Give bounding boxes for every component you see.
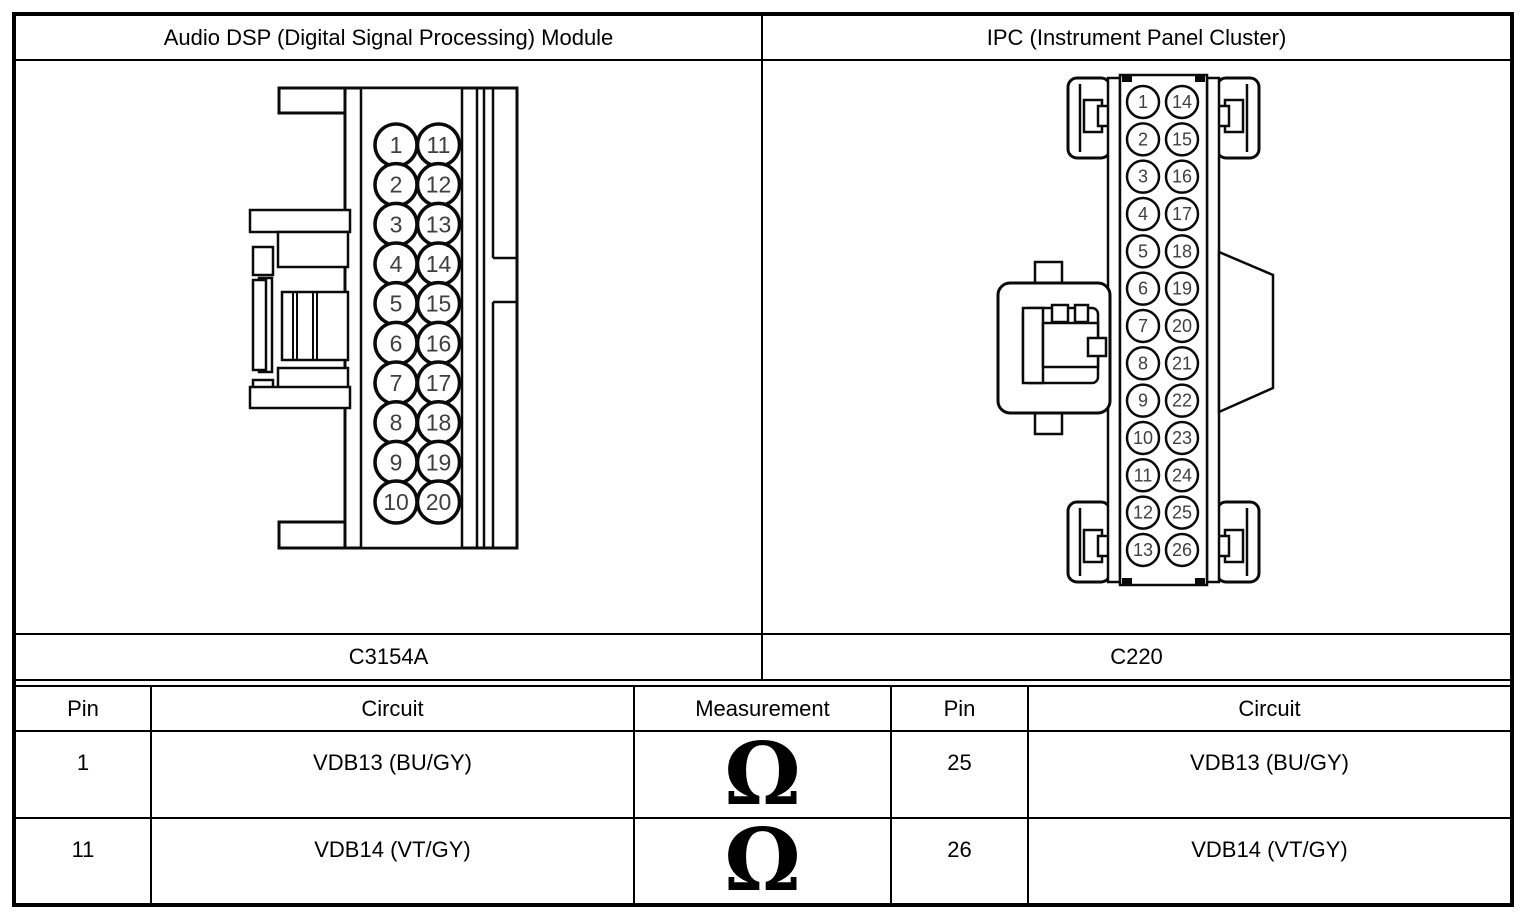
pin-number-right-18: 18 (1172, 241, 1192, 261)
pin-number-right-23: 23 (1172, 428, 1192, 448)
pin-number-left-14: 14 (426, 251, 452, 277)
pin-number-left-11: 11 (427, 132, 451, 158)
pin-number-right-3: 3 (1138, 167, 1148, 187)
outer-frame: Audio DSP (Digital Signal Processing) Mo… (12, 12, 1514, 907)
latch-tooth-top (1035, 262, 1062, 284)
pin-number-right-16: 16 (1172, 167, 1192, 187)
pin-number-left-7: 7 (390, 370, 403, 396)
panel-corner-mark (1122, 578, 1132, 584)
pin-number-right-15: 15 (1172, 129, 1192, 149)
row2-pin-right: 26 (892, 819, 1027, 903)
pin-number-left-3: 3 (390, 211, 403, 237)
pin-number-right-4: 4 (1138, 204, 1148, 224)
pin-number-left-19: 19 (426, 449, 452, 475)
latch-key (1052, 305, 1068, 322)
pin-number-right-12: 12 (1133, 503, 1153, 523)
pin-number-left-8: 8 (390, 410, 403, 436)
row1-circuit-right: VDB13 (BU/GY) (1029, 732, 1510, 817)
pin-number-right-22: 22 (1172, 391, 1192, 411)
latch-key (1075, 305, 1088, 322)
pin-number-left-9: 9 (390, 449, 403, 475)
pin-number-right-8: 8 (1138, 353, 1148, 373)
connector-label-right: C220 (763, 635, 1510, 679)
col-header-pin-right: Pin (892, 687, 1027, 730)
pin-number-right-6: 6 (1138, 279, 1148, 299)
pin-number-right-19: 19 (1172, 279, 1192, 299)
title-right: IPC (Instrument Panel Cluster) (763, 16, 1510, 59)
pin-number-left-16: 16 (426, 330, 452, 356)
pin-number-left-1: 1 (390, 132, 403, 158)
latch-upper-bar (250, 210, 350, 232)
pin-number-right-2: 2 (1138, 129, 1148, 149)
pin-number-left-18: 18 (426, 410, 452, 436)
pin-number-right-20: 20 (1172, 316, 1192, 336)
ipc-connector-diagram: 1234567891011121314151617181920212223242… (985, 70, 1285, 595)
latch-tooth-bottom (1035, 412, 1062, 434)
connector-label-left: C3154A (16, 635, 761, 679)
bottom-tab (279, 522, 345, 548)
row2-circuit-left: VDB14 (VT/GY) (152, 819, 633, 903)
col-header-circuit-right: Circuit (1029, 687, 1510, 730)
pin-number-right-24: 24 (1172, 465, 1192, 485)
ohm-symbol: Ω (724, 732, 801, 818)
pin-number-right-1: 1 (1138, 92, 1148, 112)
pin-number-right-11: 11 (1134, 465, 1153, 485)
pin-number-left-5: 5 (390, 291, 403, 317)
pin-number-left-6: 6 (390, 330, 403, 356)
right-wing (1219, 252, 1273, 412)
row2-circuit-right: VDB14 (VT/GY) (1029, 819, 1510, 903)
row1-measurement: Ω (635, 732, 890, 817)
row2-measurement: Ω (635, 819, 890, 903)
row1-pin-right: 25 (892, 732, 1027, 817)
latch-upper-step (278, 232, 348, 267)
col-header-pin-left: Pin (16, 687, 150, 730)
pin-number-right-17: 17 (1172, 204, 1192, 224)
pin-number-right-21: 21 (1172, 353, 1192, 373)
grid-line-title-bottom (16, 59, 1510, 61)
pin-number-left-12: 12 (426, 172, 452, 198)
pin-number-right-9: 9 (1138, 391, 1148, 411)
pin-number-right-13: 13 (1133, 540, 1153, 560)
pin-number-left-10: 10 (383, 489, 409, 515)
pin-number-left-15: 15 (426, 291, 452, 317)
pin-number-right-10: 10 (1133, 428, 1153, 448)
col-header-circuit-left: Circuit (152, 687, 633, 730)
latch-comb (282, 292, 348, 360)
right-wall (1207, 78, 1219, 582)
latch-upper-tab (253, 247, 273, 275)
pin-number-right-5: 5 (1138, 241, 1148, 261)
grid-line-center-divider (761, 16, 763, 681)
pin-number-left-20: 20 (426, 489, 452, 515)
panel-corner-mark (1122, 76, 1132, 82)
pin-number-right-14: 14 (1172, 92, 1192, 112)
ohm-symbol: Ω (724, 818, 801, 904)
title-left: Audio DSP (Digital Signal Processing) Mo… (16, 16, 761, 59)
panel-corner-mark (1195, 76, 1205, 82)
latch-bar (1023, 308, 1043, 383)
row1-pin-left: 1 (16, 732, 150, 817)
pin-number-right-26: 26 (1172, 540, 1192, 560)
latch-rail-outer (253, 280, 266, 370)
grid-line-label-bottom (16, 679, 1510, 681)
row2-pin-left: 11 (16, 819, 150, 903)
row1-circuit-left: VDB13 (BU/GY) (152, 732, 633, 817)
latch-lower-bar (250, 387, 350, 408)
latch-nub (1088, 338, 1106, 356)
pin-number-left-4: 4 (390, 251, 403, 277)
pin-number-right-25: 25 (1172, 503, 1192, 523)
panel-corner-mark (1195, 578, 1205, 584)
pin-number-left-2: 2 (390, 172, 403, 198)
pin-number-right-7: 7 (1138, 316, 1148, 336)
top-tab (279, 88, 345, 113)
pin-number-left-17: 17 (426, 370, 452, 396)
pin-number-left-13: 13 (426, 211, 452, 237)
connector-pinout-sheet: Audio DSP (Digital Signal Processing) Mo… (0, 0, 1526, 918)
audio-dsp-connector-diagram: 1234567891011121314151617181920 (238, 83, 528, 563)
